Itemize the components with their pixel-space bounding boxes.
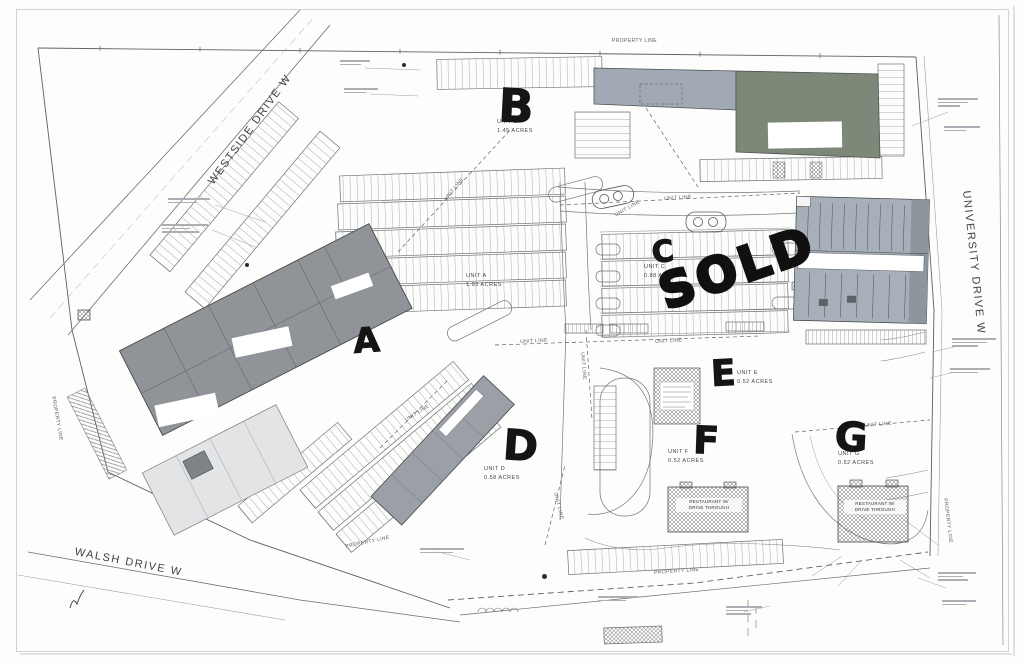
unit-d-acres: 0.58 ACRES [484,474,520,483]
restaurant-east-caption-line2: DRIVE THROUGH [846,507,904,513]
illegible-annotation [942,600,976,605]
illegible-annotation [162,224,208,233]
walsh-drive-road [18,538,930,622]
restaurant-east-caption: RESTAURANT W/ DRIVE THROUGH [844,500,906,514]
handwritten-letter-f: F [692,418,719,463]
illegible-annotation [938,98,978,107]
unit-a-name: UNIT A [466,272,502,281]
illegible-annotation [950,368,990,373]
survey-dot [402,63,406,67]
handwritten-letter-g: G [834,414,869,462]
illegible-annotation [168,198,210,203]
handwritten-letter-d: D [502,420,540,471]
walsh-entrance-drive [67,388,127,479]
restaurant-center-caption: RESTAURANT W/ DRIVE THROUGH [676,498,742,512]
property-line-label-top: PROPERTY LINE [612,38,657,44]
illegible-annotation [726,606,762,615]
pad-drive-through-e [654,368,700,424]
restaurant-center-caption-line2: DRIVE THROUGH [678,505,740,511]
unit-e-label: UNIT E 0.52 ACRES [737,369,773,386]
unit-e-acres: 0.52 ACRES [737,378,773,387]
handwritten-letter-e: E [710,353,737,395]
handwritten-letter-a: A [352,320,381,362]
illegible-annotation [420,548,464,553]
survey-dot [542,574,547,579]
illegible-annotation [938,572,976,581]
illegible-annotation [944,126,980,131]
illegible-annotation [598,596,638,601]
unit-a-label: UNIT A 1.93 ACRES [466,272,502,289]
unit-a-acres: 1.93 ACRES [466,281,502,290]
illegible-annotation [344,88,378,93]
unit-e-name: UNIT E [737,369,773,378]
illegible-annotation [340,60,370,65]
survey-dot [245,263,249,267]
site-plan-scan: WESTSIDE DRIVE W UNIVERSITY DRIVE W WALS… [0,0,1024,662]
handwritten-letter-b: B [497,78,535,134]
illegible-annotation [952,338,996,347]
